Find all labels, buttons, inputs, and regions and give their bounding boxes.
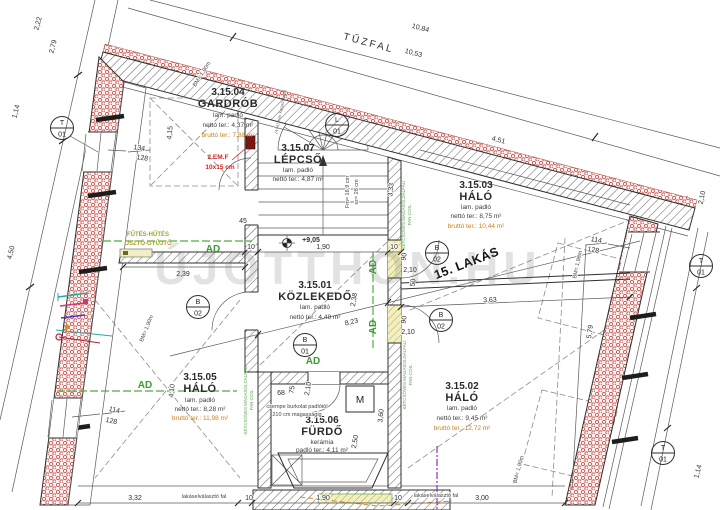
room-halo2-net: nettó ter.: 9,45 m² bbox=[437, 415, 489, 422]
marker-l-01-stairs: L01 bbox=[326, 114, 349, 137]
room-gardrob-name: GARDRÓB bbox=[198, 97, 258, 110]
dim-210b: 2,10 bbox=[401, 329, 415, 336]
dim-114a: 1,14 bbox=[12, 104, 22, 119]
dim-10c: 10 bbox=[245, 495, 253, 502]
svg-text:01: 01 bbox=[333, 129, 341, 136]
dim-363: 3,63 bbox=[483, 297, 497, 304]
svg-text:01: 01 bbox=[697, 270, 705, 277]
dim-w114a: 114 bbox=[590, 236, 602, 245]
room-halo3-gross: bruttó ter.: 10,44 m² bbox=[448, 223, 506, 230]
room-furdo-net: padló ter.: 4,11 m² bbox=[296, 447, 349, 454]
svg-text:02: 02 bbox=[437, 324, 445, 331]
svg-text:T: T bbox=[699, 258, 704, 265]
svg-text:01: 01 bbox=[301, 349, 309, 356]
dim-333: 3,33 bbox=[387, 183, 395, 197]
dim-1053: 10,53 bbox=[404, 48, 423, 59]
floor-plan-drawing: 3.15.04 GARDRÓB lam. padló nettó ter.: 4… bbox=[0, 0, 720, 510]
room-halo3-number: 3.15.03 bbox=[459, 180, 493, 191]
room-halo2-floor: lam. padló bbox=[447, 405, 477, 412]
marker-t-01-right-upper: T01 bbox=[690, 255, 713, 278]
svg-text:01: 01 bbox=[659, 457, 667, 464]
room-furdo-floor: kerámia bbox=[310, 439, 334, 446]
marker-b-01-corridor: B01 bbox=[294, 334, 317, 357]
room-halo2-name: HÁLÓ bbox=[445, 391, 478, 404]
dim-114b: 1,14 bbox=[694, 464, 704, 479]
dim-222: 2,22 bbox=[34, 16, 44, 31]
room-label-halo3: 3.15.03 HÁLÓ lam. padló nettó ter.: 8,75… bbox=[448, 180, 506, 230]
fancoil-note-3a: KÉTCSÖVES MAGASOLDALFALI bbox=[242, 365, 248, 434]
dim-415: 4,15 bbox=[166, 126, 174, 140]
fancoil-note-1b: FAN-COIL bbox=[407, 204, 412, 225]
ad-label-2: AD bbox=[138, 380, 152, 391]
svg-text:01: 01 bbox=[58, 132, 66, 139]
dim-190b: 1,90 bbox=[316, 495, 330, 502]
dim-823: 8,23 bbox=[344, 317, 359, 327]
dim-45: 45 bbox=[239, 218, 247, 225]
svg-text:B: B bbox=[303, 337, 308, 344]
dim-300: 3,00 bbox=[475, 495, 489, 502]
bathtub bbox=[278, 453, 388, 488]
washing-machine-label: M bbox=[356, 395, 364, 406]
separating-wall-label-1: lakáselválasztó fal bbox=[182, 494, 227, 500]
dim-210c: 2,10 bbox=[304, 381, 313, 396]
room-label-halo5: 3.15.05 HÁLÓ lam. padló nettó ter.: 8,28… bbox=[172, 372, 229, 422]
room-halo2-gross: bruttó ter.: 12,72 m² bbox=[434, 425, 492, 432]
room-kozlekedo-floor: lam. padló bbox=[300, 304, 330, 311]
room-gardrob-number: 3.15.04 bbox=[211, 87, 245, 98]
dim-90b: 90 bbox=[400, 315, 408, 324]
room-halo3-floor: lam. padló bbox=[461, 204, 491, 211]
room-gardrob-floor: lam. padló bbox=[213, 112, 243, 119]
fancoil-note-2b: FAN-COIL bbox=[408, 364, 413, 385]
dim-279: 2,79 bbox=[49, 39, 59, 54]
flue-note-line1: 2.EM.F bbox=[208, 154, 229, 161]
room-lepcso-name: LÉPCSŐ bbox=[274, 153, 322, 166]
dim-451: 4,51 bbox=[491, 135, 506, 145]
left-wall bbox=[40, 57, 146, 505]
room-halo3-net: nettó ter.: 8,75 m² bbox=[451, 213, 503, 220]
marker-b-02-lower: B02 bbox=[430, 309, 453, 332]
fancoil-note-1a: KÉTCSÖVES MAGASOLDALFALI bbox=[400, 180, 406, 249]
stair-going-label: sz= 28 cm bbox=[354, 179, 360, 205]
tiling-note-line2: 210 cm magasságig bbox=[272, 412, 321, 418]
room-label-lepcso: 3.15.07 LÉPCSŐ lam. padló nettó ter.: 4,… bbox=[273, 143, 325, 183]
fancoil-note-3b: FAN-COIL bbox=[249, 389, 254, 410]
room-halo5-net: nettó ter.: 8,28 m² bbox=[175, 406, 227, 413]
room-lepcso-net: nettó ter.: 4,87 m² bbox=[273, 176, 325, 183]
room-kozlekedo-net: nettó ter.: 4,48 m² bbox=[290, 314, 342, 321]
dim-210-right: 2,10 bbox=[698, 190, 708, 205]
room-halo5-floor: lam. padló bbox=[185, 397, 215, 404]
bathroom-left-wall bbox=[258, 372, 271, 488]
tiling-note-line1: csempe burkolat padlótól bbox=[266, 404, 327, 410]
svg-text:B: B bbox=[439, 312, 444, 319]
room-halo5-name: HÁLÓ bbox=[183, 382, 216, 395]
svg-text:02: 02 bbox=[194, 311, 202, 318]
dim-250: 2,50 bbox=[351, 434, 360, 449]
dim-332: 3,32 bbox=[128, 495, 142, 502]
room-halo2-number: 3.15.02 bbox=[445, 381, 479, 392]
room-gardrob-net: nettó ter.: 4,37 m² bbox=[203, 122, 255, 129]
dim-10d: 10 bbox=[394, 495, 402, 502]
room-gardrob-gross: bruttó ter.: 7,88 m² bbox=[201, 132, 255, 139]
parapet-note-3: BM= 1,90m bbox=[512, 455, 525, 484]
room-lepcso-number: 3.15.07 bbox=[281, 143, 315, 154]
ad-label-5: AD bbox=[306, 356, 320, 367]
dim-410: 4,10 bbox=[168, 384, 176, 398]
svg-text:T: T bbox=[60, 120, 65, 127]
room-halo3-name: HÁLÓ bbox=[459, 190, 492, 203]
svg-text:T: T bbox=[661, 445, 666, 452]
door-threshold-lower bbox=[388, 305, 402, 343]
dim-w114b: 114 bbox=[108, 406, 120, 415]
room-halo5-gross: bruttó ter.: 11,98 m² bbox=[172, 415, 229, 422]
ad-label-4: AD bbox=[368, 320, 379, 334]
flue-note-line2: 10x15 cm bbox=[205, 164, 234, 171]
marker-t-01-right-lower: T01 bbox=[652, 442, 675, 465]
dim-360: 3,60 bbox=[377, 409, 385, 423]
dim-1084: 10,84 bbox=[411, 23, 430, 34]
svg-text:B: B bbox=[196, 299, 201, 306]
dim-w128c: 128 bbox=[105, 417, 118, 426]
parapet-note-2: BM= 1,90m bbox=[139, 314, 155, 343]
fancoil-note-2a: KÉTCSÖVES MAGASOLDALFALI bbox=[401, 340, 407, 409]
dim-w128a: 128 bbox=[136, 154, 149, 163]
dim-238: 2,38 bbox=[350, 292, 359, 307]
room-label-halo2: 3.15.02 HÁLÓ lam. padló nettó ter.: 9,45… bbox=[434, 381, 492, 432]
marker-t-01-left: T01 bbox=[51, 117, 74, 140]
room-halo5-number: 3.15.05 bbox=[183, 372, 217, 383]
watermark: ÚJOTTHON.HU bbox=[154, 242, 541, 294]
room-label-furdo: 3.15.06 FÜRDŐ kerámia padló ter.: 4,11 m… bbox=[296, 415, 349, 454]
heating-note-line1: FŰTÉS-HŰTÉS bbox=[127, 230, 169, 238]
dim-579: 5,79 bbox=[586, 324, 595, 339]
room-furdo-name: FÜRDŐ bbox=[301, 425, 343, 438]
window-left-lower bbox=[49, 398, 82, 438]
dim-68: 68 bbox=[277, 390, 285, 397]
svg-text:L: L bbox=[335, 117, 339, 124]
separating-wall-label-2: lakáselválasztó fal bbox=[414, 493, 459, 499]
marker-b-02-left: B02 bbox=[187, 296, 210, 319]
room-lepcso-floor: lam. padló bbox=[283, 167, 313, 174]
dim-75: 75 bbox=[288, 385, 296, 394]
dim-450: 4,50 bbox=[7, 245, 17, 260]
stair-rise-label: Fm= 16,9 cm bbox=[345, 175, 351, 208]
